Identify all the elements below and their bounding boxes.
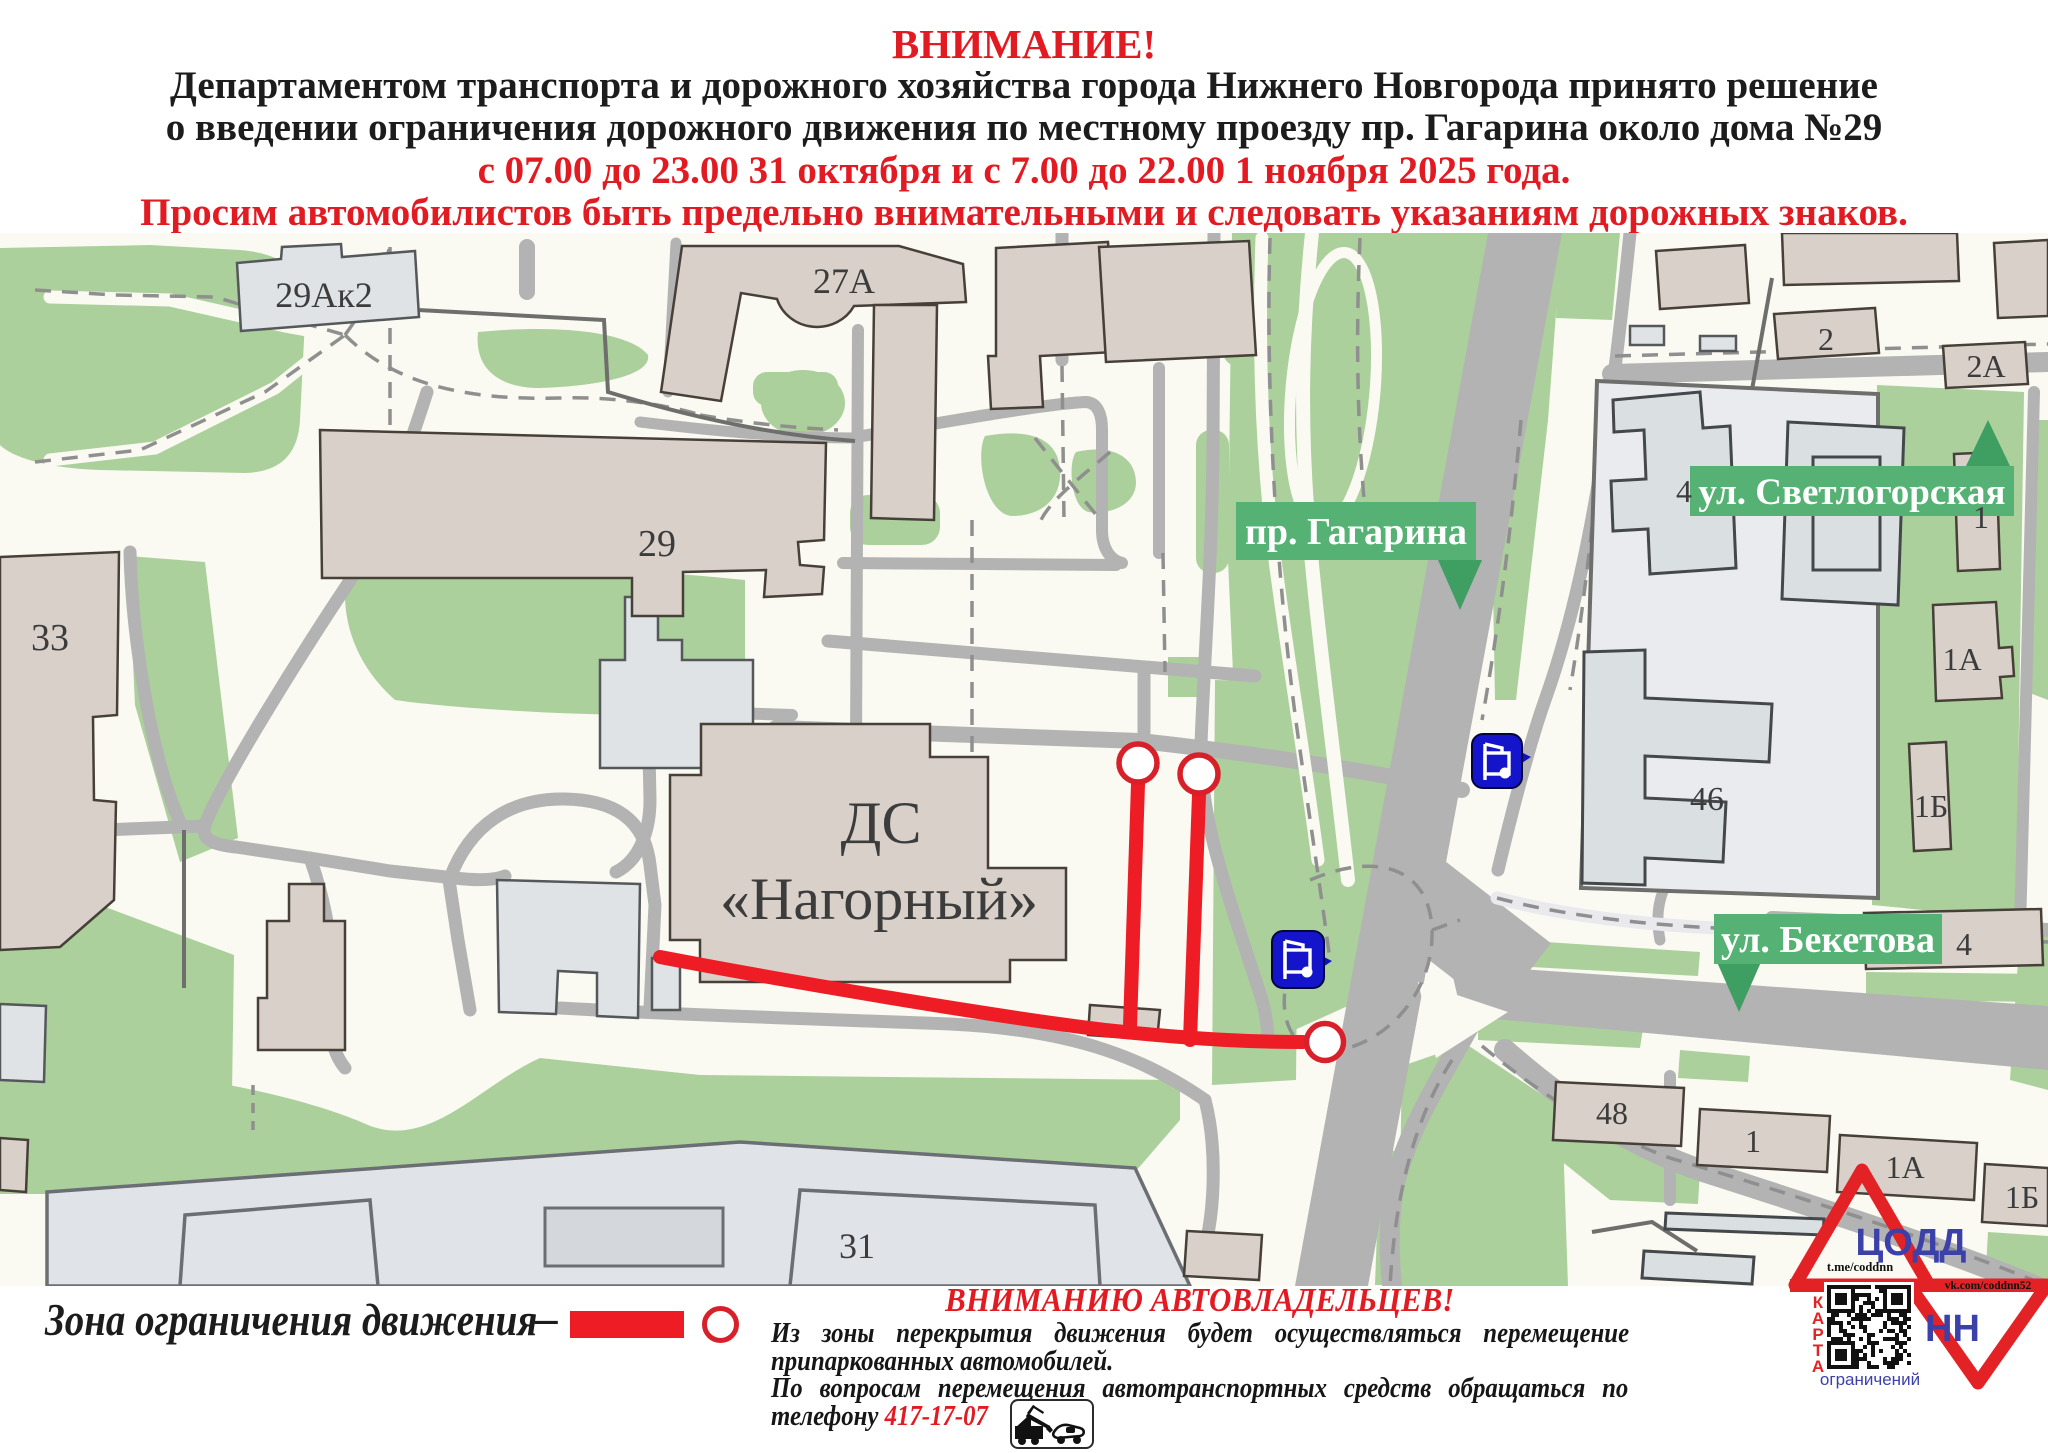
svg-text:1: 1 [1973,499,1989,535]
svg-text:1: 1 [1745,1123,1761,1159]
svg-text:1Б: 1Б [1914,788,1948,824]
svg-text:t.me/coddnn: t.me/coddnn [1827,1260,1893,1274]
svg-text:ЦОДД: ЦОДД [1856,1222,1967,1264]
svg-text:4: 4 [1676,473,1692,509]
svg-text:31: 31 [839,1226,875,1266]
svg-text:1А: 1А [1942,641,1981,677]
svg-text:2А: 2А [1966,348,2005,384]
svg-text:пр. Гагарина: пр. Гагарина [1245,511,1467,553]
svg-text:29: 29 [638,523,676,565]
svg-text:4: 4 [1956,926,1972,962]
svg-text:48: 48 [1596,1095,1628,1131]
svg-text:ул. Бекетова: ул. Бекетова [1721,919,1935,961]
svg-text:2: 2 [1818,321,1834,357]
svg-text:46: 46 [1690,781,1724,818]
svg-text:29Ак2: 29Ак2 [275,275,373,315]
svg-text:ДС: ДС [841,790,922,856]
svg-text:ул. Светлогорская: ул. Светлогорская [1698,472,2005,513]
svg-text:ограничений: ограничений [1820,1370,1920,1389]
svg-text:33: 33 [31,617,69,659]
svg-text:27А: 27А [813,261,875,301]
svg-text:НН: НН [1925,1308,1980,1350]
svg-text:«Нагорный»: «Нагорный» [720,866,1038,932]
svg-text:vk.com/coddnn52: vk.com/coddnn52 [1945,1280,2032,1292]
